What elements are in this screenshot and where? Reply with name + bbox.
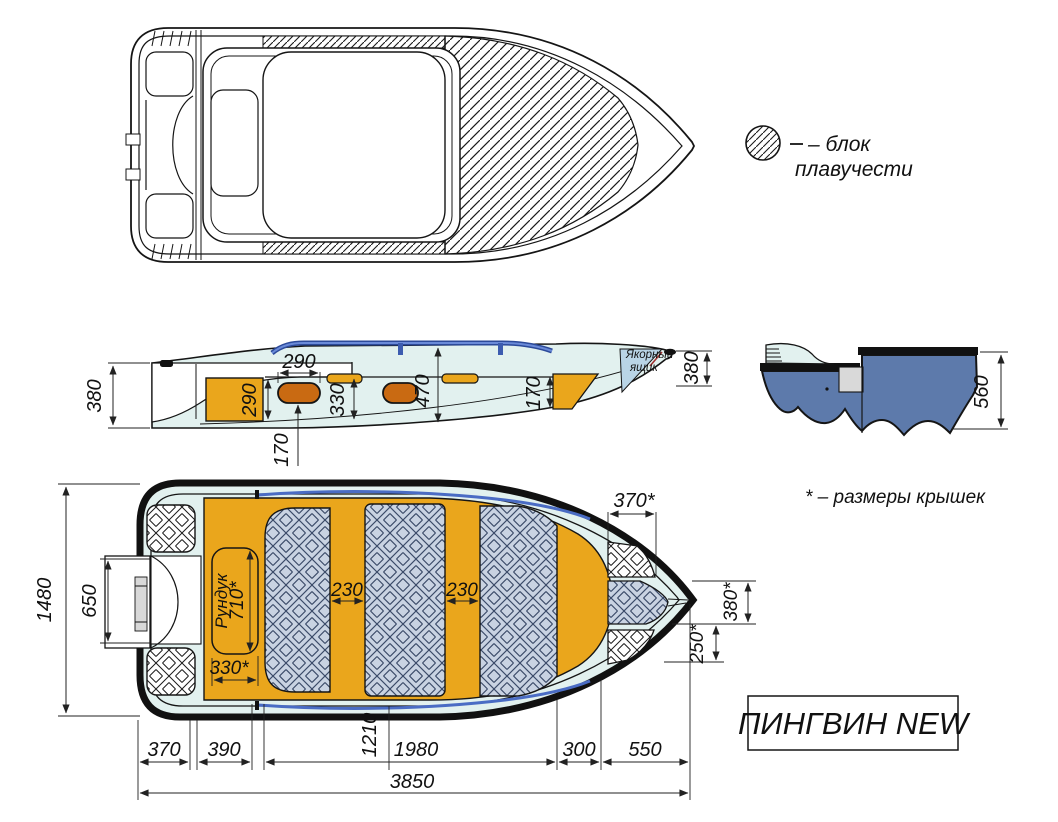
dim-side-seat-height: 170 — [271, 433, 293, 466]
legend-line2: плавучести — [795, 158, 913, 181]
dim-plan-beam: 1480 — [34, 578, 56, 623]
dim-bow-lid-height: 380* — [721, 582, 742, 622]
dim-length-cockpit: 1980 — [394, 739, 439, 761]
plan-stern-buoyancy-bottom — [147, 648, 195, 695]
anchor-box-label-1: Якорный — [625, 349, 674, 361]
dim-bench2-width: 230 — [445, 580, 478, 601]
top-step-notch-2 — [126, 169, 140, 180]
dim-side-bow-locker: 170 — [523, 376, 545, 409]
legend-line1: – блок — [807, 133, 871, 156]
side-seat-strip-1 — [327, 374, 362, 383]
top-step-notch-1 — [126, 134, 140, 145]
side-seat-cushion-1 — [278, 383, 320, 403]
dim-side-cockpit-depth: 470 — [412, 374, 434, 407]
section-motor-mount — [839, 367, 863, 392]
plan-rail-base-bottom — [255, 701, 259, 710]
plan-floor-panel-2 — [365, 504, 445, 696]
plan-floor-panel-1 — [265, 508, 330, 692]
dim-length-overall: 3850 — [390, 771, 435, 793]
dim-side-seat-length: 290 — [281, 351, 315, 373]
plan-rail-base-top — [255, 490, 259, 499]
dim-bow-lid-width: 370* — [613, 490, 655, 512]
model-title: ПИНГВИН NEW — [738, 706, 971, 741]
dim-length-bow-seat: 300 — [562, 739, 595, 761]
side-stern-cleat — [160, 360, 173, 367]
plan-stern-buoyancy-top — [147, 505, 195, 552]
dim-bench1-width: 230 — [330, 580, 363, 601]
dim-side-transom-height: 380 — [84, 379, 106, 412]
boat-drawing-page: – блок плавучести 380 290 290 3 — [0, 0, 1058, 822]
dim-rundook-length: 710* — [227, 581, 248, 621]
side-rail-stanchion-1 — [398, 343, 403, 355]
dim-side-bow-height: 380 — [681, 351, 703, 384]
anchor-box-label-2: ящик — [629, 362, 658, 374]
dim-rundook-width: 330* — [209, 658, 249, 679]
side-rail-stanchion-2 — [498, 343, 503, 355]
section-drain-dot — [825, 387, 828, 390]
dim-length-to-bench: 1210 — [359, 713, 381, 758]
plan-motor-pad — [135, 577, 147, 631]
top-stern-pod-bottom — [146, 194, 193, 238]
dim-side-mid-height: 330 — [327, 383, 349, 416]
top-deck-band-top — [263, 36, 445, 48]
covers-note: * – размеры крышек — [805, 487, 986, 508]
top-console — [211, 90, 258, 196]
dim-plan-motor-mount: 650 — [79, 584, 101, 617]
dim-section-height: 560 — [971, 375, 993, 408]
dim-side-stern-locker: 290 — [239, 383, 261, 417]
buoyancy-swatch — [746, 126, 780, 160]
top-stern-pod-top — [146, 52, 193, 96]
top-deck-band-bottom — [263, 242, 445, 254]
plan-stern-well — [151, 556, 201, 644]
plan-floor-panel-3 — [480, 506, 557, 696]
section-gunwale-right — [858, 347, 978, 355]
dim-length-bow: 550 — [628, 739, 661, 761]
dim-length-stern: 370 — [147, 739, 180, 761]
dim-length-stern-seat: 390 — [207, 739, 240, 761]
top-casting-deck — [263, 52, 445, 238]
side-seat-strip-2 — [442, 374, 478, 383]
title-box: ПИНГВИН NEW — [738, 696, 971, 750]
